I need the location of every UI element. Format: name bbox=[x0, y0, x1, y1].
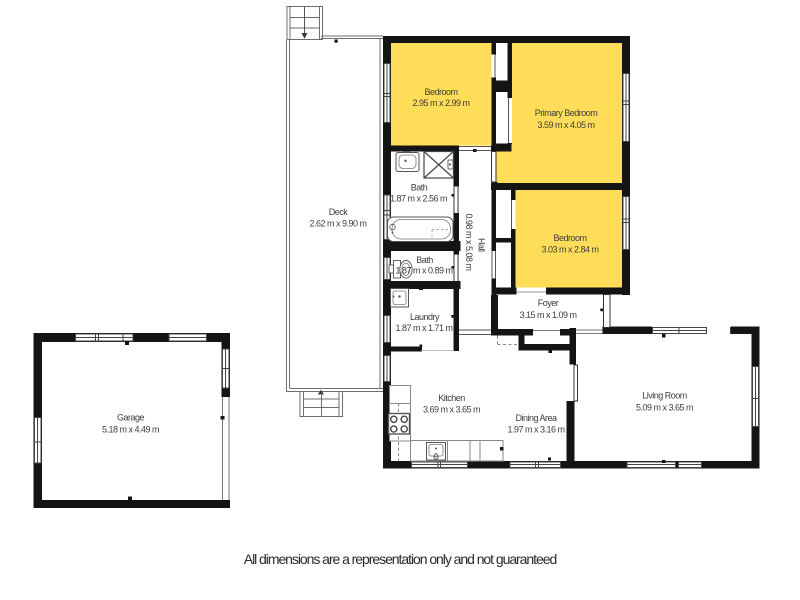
svg-text:All dimensions are a represent: All dimensions are a representation only… bbox=[244, 551, 557, 567]
svg-text:0.98 m x 5.08 m: 0.98 m x 5.08 m bbox=[464, 213, 474, 270]
svg-text:Living Room: Living Room bbox=[642, 391, 687, 401]
svg-text:1.97 m x 3.16 m: 1.97 m x 3.16 m bbox=[507, 425, 564, 435]
svg-text:3.59 m x 4.05 m: 3.59 m x 4.05 m bbox=[537, 120, 594, 130]
svg-text:1.87 m x 0.89 m: 1.87 m x 0.89 m bbox=[395, 266, 452, 276]
svg-text:3.69 m x 3.65 m: 3.69 m x 3.65 m bbox=[423, 405, 480, 415]
svg-text:2.95 m x 2.99 m: 2.95 m x 2.99 m bbox=[412, 98, 469, 108]
svg-text:Hall: Hall bbox=[476, 238, 486, 252]
svg-text:3.15 m x 1.09 m: 3.15 m x 1.09 m bbox=[519, 310, 576, 320]
svg-text:1.87 m x 2.56 m: 1.87 m x 2.56 m bbox=[390, 194, 447, 204]
svg-text:Laundry: Laundry bbox=[410, 312, 440, 322]
svg-text:5.09 m x 3.65 m: 5.09 m x 3.65 m bbox=[636, 403, 693, 413]
svg-text:Bath: Bath bbox=[416, 255, 433, 265]
svg-text:Primary Bedroom: Primary Bedroom bbox=[535, 108, 598, 118]
svg-text:Foyer: Foyer bbox=[538, 298, 559, 308]
svg-text:Bedroom: Bedroom bbox=[553, 233, 586, 243]
svg-text:5.18 m x 4.49 m: 5.18 m x 4.49 m bbox=[102, 425, 159, 435]
svg-text:Kitchen: Kitchen bbox=[438, 393, 465, 403]
svg-text:Bedroom: Bedroom bbox=[424, 87, 457, 97]
svg-text:2.62 m x 9.90 m: 2.62 m x 9.90 m bbox=[309, 219, 366, 229]
svg-text:Bath: Bath bbox=[411, 183, 428, 193]
svg-text:Dining Area: Dining Area bbox=[515, 413, 557, 423]
svg-text:1.87 m x 1.71 m: 1.87 m x 1.71 m bbox=[395, 323, 452, 333]
svg-text:3.03 m x 2.84 m: 3.03 m x 2.84 m bbox=[541, 245, 598, 255]
svg-text:Deck: Deck bbox=[329, 207, 349, 217]
svg-text:Garage: Garage bbox=[117, 413, 145, 423]
